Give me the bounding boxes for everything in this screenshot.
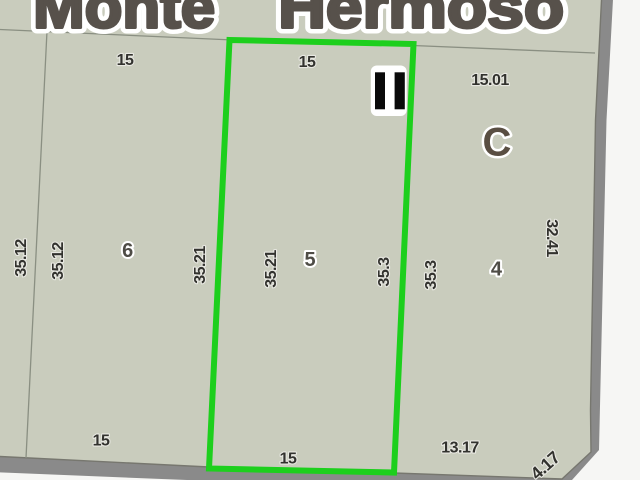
svg-text:Monte: Monte — [33, 0, 215, 40]
svg-text:35.12: 35.12 — [13, 239, 30, 277]
svg-text:Hermoso: Hermoso — [278, 0, 564, 41]
svg-text:6: 6 — [122, 240, 133, 262]
svg-text:15: 15 — [93, 433, 110, 450]
svg-text:32.41: 32.41 — [543, 219, 560, 257]
svg-text:15.01: 15.01 — [471, 72, 509, 89]
svg-text:4: 4 — [491, 258, 503, 280]
svg-text:35.12: 35.12 — [50, 242, 67, 280]
svg-text:35.21: 35.21 — [263, 250, 280, 288]
svg-text:35.21: 35.21 — [192, 246, 209, 284]
svg-text:35.3: 35.3 — [423, 260, 440, 290]
svg-text:15: 15 — [299, 54, 316, 71]
svg-text:C: C — [483, 121, 512, 165]
svg-text:35.3: 35.3 — [376, 257, 393, 287]
svg-text:15: 15 — [117, 52, 134, 69]
svg-text:5: 5 — [304, 249, 315, 271]
svg-text:15: 15 — [280, 451, 297, 468]
svg-text:13.17: 13.17 — [441, 440, 479, 457]
